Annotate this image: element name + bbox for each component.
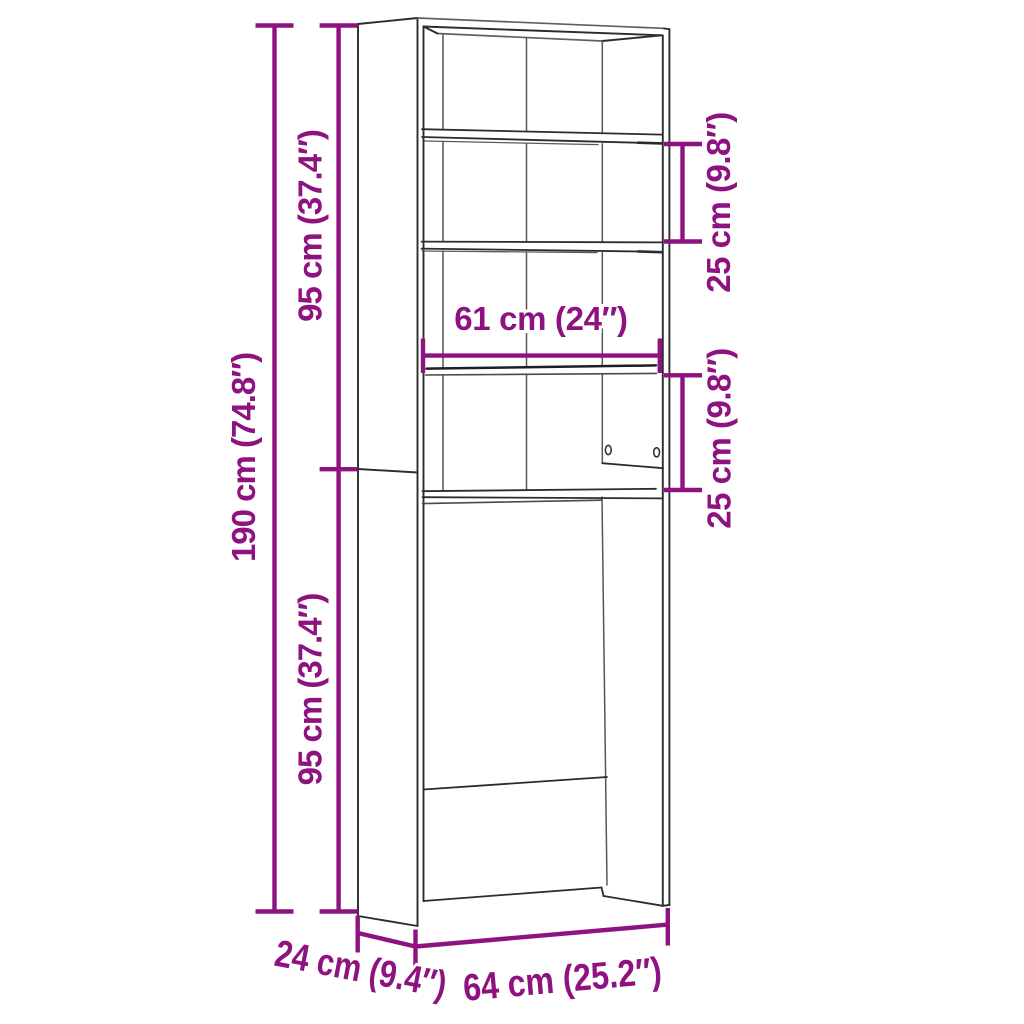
svg-text:25 cm (9.8″): 25 cm (9.8″) (700, 112, 737, 292)
svg-text:95 cm (37.4″): 95 cm (37.4″) (292, 594, 329, 786)
svg-text:95 cm (37.4″): 95 cm (37.4″) (292, 130, 329, 322)
svg-text:190 cm (74.8″): 190 cm (74.8″) (225, 353, 262, 562)
svg-text:25 cm (9.8″): 25 cm (9.8″) (701, 348, 738, 528)
svg-text:61 cm (24″): 61 cm (24″) (454, 300, 627, 337)
